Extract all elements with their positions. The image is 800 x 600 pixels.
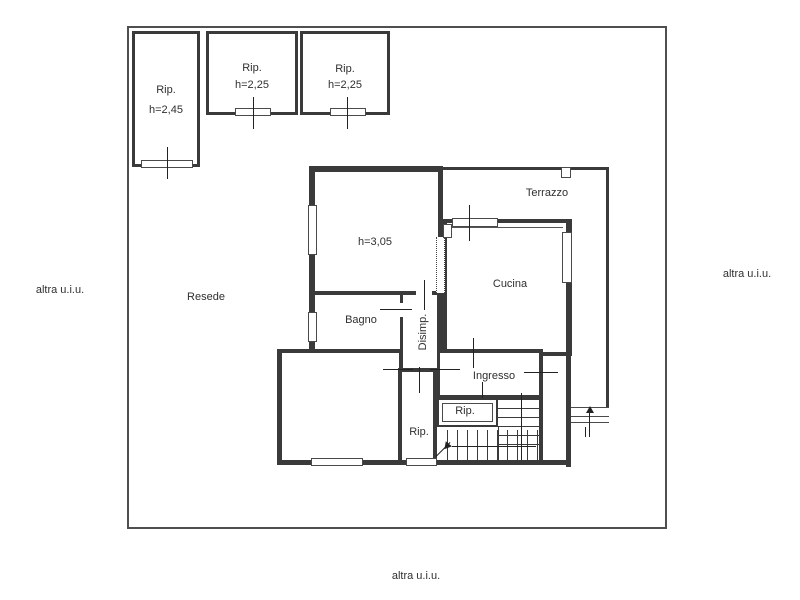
storage3-height-label: h=2,25 — [300, 79, 390, 91]
storage1-door-tick — [167, 147, 168, 179]
terrace-kitchen-door-tick — [469, 205, 470, 241]
storage3-label: Rip. — [300, 63, 390, 75]
entrance-landing-door-tick — [524, 372, 558, 373]
kitchen-entrance-door-tick — [473, 338, 474, 368]
room-storage1 — [132, 31, 200, 167]
exterior-steps-arrow-line — [589, 410, 590, 437]
other-unit-label-right: altra u.i.u. — [707, 268, 787, 280]
bathroom-door-tick — [380, 309, 412, 310]
other-unit-label-bottom: altra u.i.u. — [376, 570, 456, 582]
terrace-kitchen-door-sill — [452, 218, 498, 227]
closet-label: Rip. — [440, 405, 490, 417]
terrace-label: Terrazzo — [519, 187, 575, 199]
hallway-bottom-door-tick-v — [419, 367, 420, 393]
floor-plan-canvas: Rip. h=2,45 Rip. h=2,25 Rip. h=2,25 Rese… — [0, 0, 800, 600]
lower-room-window — [311, 458, 363, 466]
wall-notch — [443, 224, 452, 238]
bathroom-label: Bagno — [340, 314, 382, 326]
storage3-door-sill — [330, 108, 366, 116]
storage3-door-tick — [347, 97, 348, 129]
stairs-section-line-v — [521, 393, 522, 460]
storage2-label: Rip. — [206, 62, 298, 74]
room-main-h305 — [309, 166, 443, 295]
other-unit-label-left: altra u.i.u. — [20, 284, 100, 296]
bathroom-door-gap — [399, 303, 405, 317]
terrace-parapet-right — [606, 167, 609, 408]
corridor-window — [406, 458, 437, 466]
bathroom-window — [308, 312, 317, 342]
exterior-steps-arrow-head — [586, 406, 594, 413]
exterior-steps-tick — [585, 427, 586, 437]
main-room-window — [308, 205, 317, 255]
yard-label: Resede — [176, 291, 236, 303]
mainroom-hallway-door-tick — [424, 280, 425, 310]
entrance-left-door-tick — [430, 369, 460, 370]
terrace-parapet-top — [443, 167, 609, 170]
storage1-label: Rip. — [132, 84, 200, 96]
entrance-label: Ingresso — [466, 370, 522, 382]
lower-room-door-tick — [383, 369, 413, 370]
storage1-height-label: h=2,45 — [132, 104, 200, 116]
kitchen-top-wall-inner-line — [447, 227, 563, 228]
open-passage-dotted — [436, 237, 445, 293]
storage2-height-label: h=2,25 — [206, 79, 298, 91]
main-room-height-label: h=3,05 — [345, 236, 405, 248]
room-storage-nook-corridor — [398, 368, 437, 465]
stairs-run-divider — [498, 427, 499, 460]
terrace-notch — [561, 167, 571, 178]
kitchen-label: Cucina — [488, 278, 532, 290]
storage-nook-label: Rip. — [399, 426, 439, 438]
kitchen-window — [562, 232, 572, 283]
stairs-section-line-h — [452, 446, 536, 447]
stairs-lower-run — [447, 430, 539, 460]
room-lower-left — [277, 349, 403, 465]
storage2-door-tick — [253, 97, 254, 129]
hallway-label: Disimp. — [417, 307, 429, 357]
